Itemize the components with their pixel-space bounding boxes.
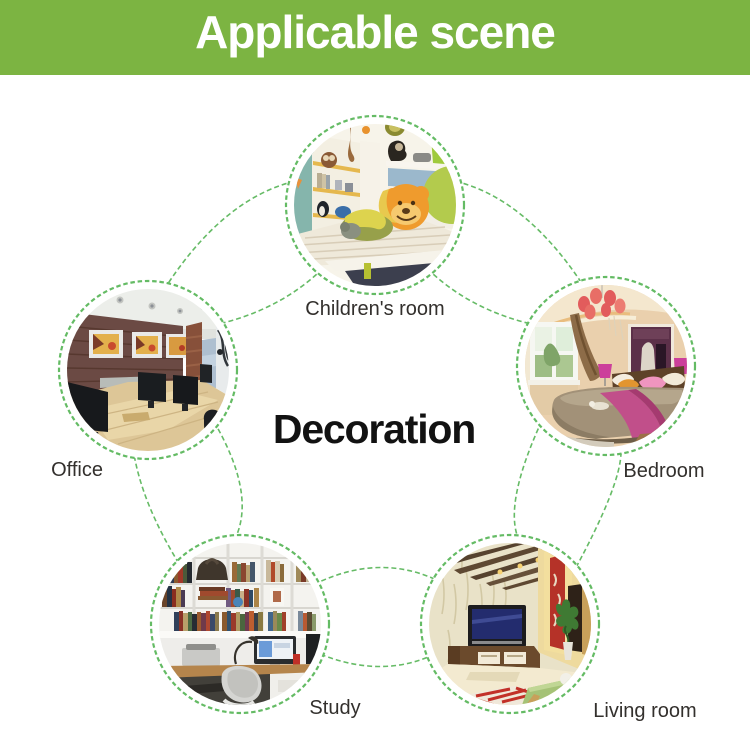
svg-text:Decoration: Decoration [273, 406, 475, 452]
svg-text:Living room: Living room [593, 700, 696, 722]
svg-text:Applicable scene: Applicable scene [195, 6, 555, 58]
svg-text:Bedroom: Bedroom [623, 460, 704, 482]
svg-text:Study: Study [309, 697, 360, 719]
svg-text:Office: Office [51, 459, 103, 481]
svg-text:Children's room: Children's room [305, 298, 444, 320]
